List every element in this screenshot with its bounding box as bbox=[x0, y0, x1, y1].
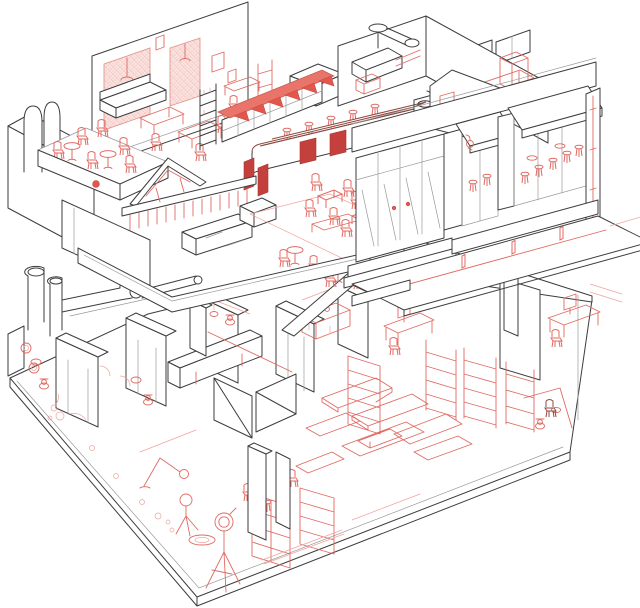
building-cutaway-drawing bbox=[0, 0, 640, 608]
wall-panel bbox=[258, 164, 268, 196]
counter-panel bbox=[330, 130, 346, 156]
lower-floor bbox=[8, 236, 622, 606]
upper-floor bbox=[8, 2, 640, 316]
lounge bbox=[8, 2, 344, 254]
pier bbox=[498, 113, 514, 210]
storefront bbox=[344, 58, 640, 316]
round-ornament bbox=[93, 181, 100, 188]
entry-doors[interactable] bbox=[356, 134, 444, 262]
drawing-canvas bbox=[0, 0, 640, 608]
pier bbox=[444, 129, 462, 230]
counter-panel bbox=[300, 138, 316, 164]
